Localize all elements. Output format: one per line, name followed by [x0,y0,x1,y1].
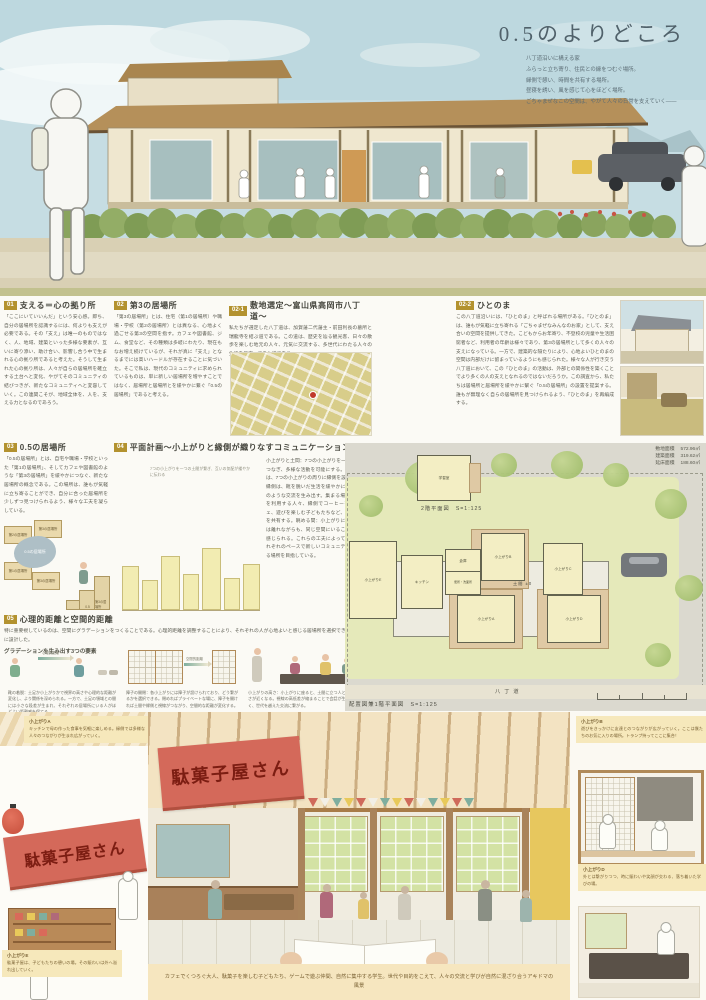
pedestrian-right [682,146,706,246]
section-title: 第3の居場所 [130,300,177,311]
tree-icon [603,463,629,487]
room-koagari-d: 小上がりD [547,595,601,643]
site-plan: 学習室 2階平面図 S=1:125 敷地面積572.96㎡ 建築面積319.62… [345,443,706,711]
stat-label: 敷地面積 [655,445,674,452]
intro-poem: 八丁道沿いに構える家 ふらっと立ち寄り、住民との縁をつむぐ場所。 縁側で憩い、時… [526,54,686,108]
climbing-person-icon [79,562,88,584]
study-counter [589,953,689,979]
room-storage: 倉庫 [445,549,481,573]
axon-block [183,574,199,610]
hitonoma-interior-photo [620,366,704,436]
hitonoma-exterior-photo [620,300,704,364]
lantern-icon [2,808,24,834]
scale-bar [597,693,687,700]
room-koagari-b: 小上がりB [481,533,525,581]
standing-person-icon [252,648,262,682]
section-body: 「ここにいていいんだ」という安心感。即ち、自分の居場所を認識するには、何よりも支… [4,314,107,409]
caption-body: 駄菓子屋は、子どもたちの憩いの場。その賑わいは外へ溢れ出していく。 [7,960,117,974]
section-body: 「0.5の居場所」とは、自宅や職場・学校といった「第1の居場所」、そしてカフェや… [4,456,108,516]
diagram-05-place-concept: 第2の居場所 第3の居場所 第1の居場所 第3の居場所 0.5の居場所 0.5 … [4,520,108,614]
sitting-person-icon [10,658,20,677]
caption-title: 小上がりD [583,867,701,873]
diagram-blob: 0.5の居場所 [14,536,56,568]
tree-icon [359,495,383,517]
person-silhouette [520,890,532,922]
scene-koagari-d [578,906,700,998]
diagram-box: 第3の居場所 [32,572,60,590]
candy-icon [51,913,59,920]
car-icon [621,553,667,577]
section-number: 02 [114,301,127,310]
shoe-icon [109,670,118,675]
street-label: 八丁道 [495,688,523,695]
intro-line: 昼寝を誘い、風を感じて心をほどく場所。 [526,86,686,97]
tree-icon [645,643,671,667]
stat-value: 188.60㎡ [681,459,700,466]
panel-dagashiya-interior: 小上がりA キッチンで母の作った食事を気軽に楽しめる。縁側では多様な人々のつなが… [0,712,148,1000]
candy-icon [15,929,23,936]
sitting-person-icon [290,656,300,674]
section-01: 01支える＝心の拠り所 「ここにいていいんだ」という安心感。即ち、自分の居場所を… [4,300,107,409]
table [224,894,294,910]
room-kitchen: キッチン [401,555,443,609]
person-silhouette [398,886,411,920]
window-green-view [304,816,368,892]
arrow-label: 心理的距離 [42,650,59,655]
candy-icon [27,929,35,936]
section-number: 03 [4,443,17,452]
panel-main-interior: 駄菓子屋さん カフェでくつろぐ大人、駄菓子を楽しむ子どもたち、ゲームで遊ぶ仲間、… [148,712,570,1000]
section-02-2: 02-2ひとのま この八丁道沿いには、「ひとのま」と呼ばれる場所がある。「ひとの… [456,300,614,409]
section-number: 02-1 [229,306,247,315]
person-silhouette [478,880,492,921]
section-title: 敷地選定〜富山県高岡市八丁道〜 [250,300,372,322]
stat-label: 建築面積 [655,452,674,459]
dagashiya-banner: 駄菓子屋さん [158,736,305,811]
doma-label: 土間 ±0 [513,581,532,587]
section-body: この八丁道沿いには、「ひとのま」と呼ばれる場所がある。「ひとのま」は、誰もが気軽… [456,314,614,409]
tree-icon [675,575,703,601]
axon-block [161,556,180,610]
hero-illustration: 0.5のよりどころ 八丁道沿いに構える家 ふらっと立ち寄り、住民との縁をつむぐ場… [0,0,706,296]
site-location-map [230,352,372,436]
arrow-label: 空間的距離 [186,656,203,661]
child-silhouette [358,892,369,919]
caption-koagari-a: 小上がりA キッチンで母の作った食事を気軽に楽しめる。縁側では多様な人々のつなが… [24,716,148,743]
window [585,913,627,949]
plan-diagram-note: 7つの小上がりを一つの土間が繋ぎ、互いの気配が緩やかに伝わる [150,466,250,478]
kneeling-person-icon [74,658,84,677]
section-02: 02第3の居場所 「第3の居場所」とは、住宅（第1の居場所）や職場・学校（第2の… [114,300,222,400]
room-study: 学習室 [417,455,471,501]
intro-line: ふらっと立ち寄り、住民との縁をつむぐ場所。 [526,65,686,76]
section-number: 04 [114,443,127,452]
person-silhouette [320,884,333,918]
intro-line: 八丁道沿いに構える家 [526,54,686,65]
candy-icon [27,913,35,920]
candy-icon [15,913,23,920]
map-streets [231,353,371,435]
balcony [469,463,481,493]
yellow-cart-icon [572,160,592,174]
plan-1f-label: 配置図兼1階平面図 S=1:125 [349,700,438,708]
section-03: 030.5の居場所 「0.5の居場所」とは、自宅や職場・学校といった「第1の居場… [4,442,108,516]
section-02-1: 02-1敷地選定〜富山県高岡市八丁道〜 私たちが選定した八丁道は、加賀藩二代藩主… [229,300,372,360]
stat-label: 延床面積 [655,459,674,466]
caption-koagari-e: 小上がりE 駄菓子屋は、子どもたちの憩いの場。その賑わいは外へ溢れ出していく。 [2,950,122,977]
child-outline [651,827,668,851]
floor-edge [581,851,695,857]
shoji-panel [128,650,156,684]
axon-block [202,548,221,610]
stair-step: 第3の居場所 [94,576,110,610]
caption-title: 小上がりE [7,953,117,959]
section-04: 04平面計画〜小上がりと縁側が織りなすコミュニケーション〜 [114,442,370,456]
axon-block [142,580,158,610]
section-title: 心理的距離と空間的距離 [20,614,114,625]
section-number: 02-2 [456,301,474,310]
section-title: 支える＝心の拠り所 [20,300,96,311]
stat-value: 319.62㎡ [681,452,700,459]
axon-block [243,564,260,610]
figure-shoji: 空間的距離 [128,648,238,686]
shoji-panel [212,650,236,684]
shoji-panel [155,650,183,684]
section-body: 「第3の居場所」とは、住宅（第1の居場所）や職場・学校（第2の居場所）とは異なる… [114,314,222,400]
tree-icon [655,489,687,519]
caption-koagari-d: 小上がりD 外とは繋がりつつ、時に賑わいや笑顔が交わる、落ち着いた学びの場。 [578,864,706,891]
window-green-view [380,816,444,892]
caption-koagari-b: 小上がりB 遊びをきっかけに友達とのつながりが広がっていく。ここは僕たちのお気に… [576,716,706,743]
floor [579,983,699,997]
section-title: 平面計画〜小上がりと縁側が織りなすコミュニケーション〜 [130,442,359,453]
section-title: 0.5の居場所 [20,442,67,453]
figure-caption-2: 障子の開閉：各小上がりには障子が設けられており、どう繋がるかを選択できる。閉めれ… [126,690,238,709]
candy-icon [39,913,47,920]
area-statistics: 敷地面積572.96㎡ 建築面積319.62㎡ 延床面積188.60㎡ [572,445,700,466]
intro-line: 縁側で憩い、時間を共有する場所。 [526,76,686,87]
poster-title: 0.5のよりどころ [499,18,686,48]
scene-koagari-b [578,770,704,866]
candy-icon [39,929,47,936]
caption-body: キッチンで母の作った食事を気軽に楽しめる。縁側では多様な人々のつながりが生まれ広… [29,726,145,740]
window [156,824,230,878]
panel-right-scenes: 小上がりB 遊びをきっかけに友達とのつながりが広がっていく。ここは僕たちのお気に… [570,712,706,1000]
plan-2f-label: 2階平面図 S=1:125 [421,505,482,512]
section-title: ひとのま [477,300,511,311]
child-outline [599,821,616,849]
presentation-board: 0.5のよりどころ 八丁道沿いに構える家 ふらっと立ち寄り、住民との縁をつむぐ場… [0,0,706,1000]
person-silhouette [208,880,222,919]
caption-title: 小上がりB [581,719,703,725]
axon-block [224,578,240,610]
tree-icon [491,453,517,477]
person-outline [657,929,675,955]
section-number: 05 [4,615,17,624]
figure-shoe-removal: 心理的距離 [8,650,118,684]
room-koagari-e: 小上がりE [349,541,397,619]
doorway [637,777,693,821]
caption-body: 外とは繋がりつつ、時に賑わいや笑顔が交わる、落ち着いた学びの場。 [583,874,701,888]
sitting-person-icon [320,654,331,675]
intro-line: ごちゃまぜなこの空間は、やがて人々の日常を支えていく—— [526,97,686,108]
bottom-caption-strip: カフェでくつろぐ大人、駄菓子を楽しむ子どもたち、ゲームで遊ぶ仲間、自然に集中する… [148,964,570,1000]
caption-body: 遊びをきっかけに友達とのつながりが広がっていく。ここは僕たちのお気に入りの場所。… [581,726,703,740]
room-wc: 便所・洗面所 [445,571,481,595]
site-marker-icon [309,391,317,399]
room-koagari-c: 小上がりC [543,543,583,595]
plan-axon-diagram [122,490,260,611]
caption-title: 小上がりA [29,719,145,725]
shoe-icon [98,670,107,675]
yellow-wall [530,808,570,920]
section-number: 01 [4,301,17,310]
stat-value: 572.96㎡ [681,445,700,452]
room-koagari-a: 小上がりA [457,595,515,643]
bunting-flags [308,798,474,807]
bottom-caption-text: カフェでくつろぐ大人、駄菓子を楽しむ子どもたち、ゲームで遊ぶ仲間、自然に集中する… [164,973,554,991]
section-body: 特に重要視しているのは、空間にグラデーションをつくることである。心理的距離を調整… [4,628,360,645]
axon-block [122,566,139,610]
person-outline [118,878,138,920]
